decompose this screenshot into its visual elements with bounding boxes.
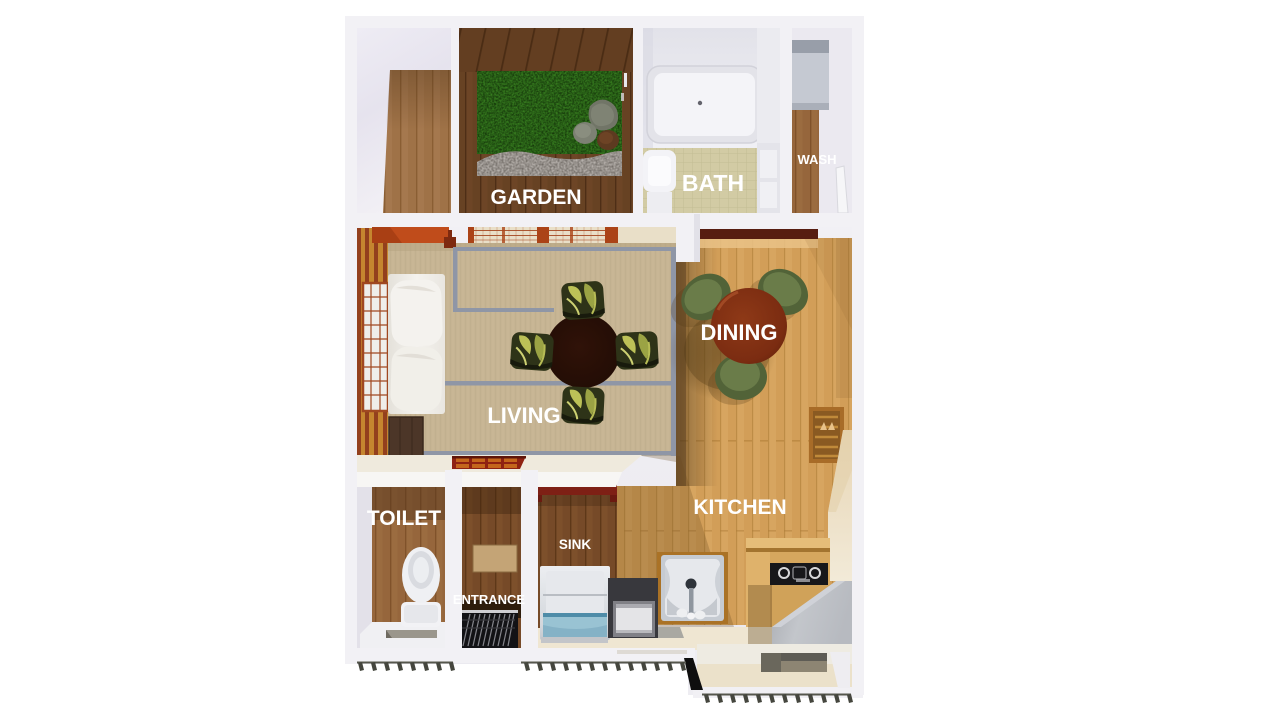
svg-text:ENTRANCE: ENTRANCE (453, 592, 526, 607)
svg-text:WASH: WASH (798, 152, 837, 167)
svg-text:DINING: DINING (701, 320, 778, 345)
svg-text:BATH: BATH (682, 170, 744, 196)
svg-text:LIVING: LIVING (487, 403, 560, 428)
svg-text:SINK: SINK (559, 537, 592, 552)
svg-text:TOILET: TOILET (367, 507, 441, 530)
svg-text:KITCHEN: KITCHEN (693, 496, 786, 519)
svg-text:GARDEN: GARDEN (490, 186, 581, 209)
